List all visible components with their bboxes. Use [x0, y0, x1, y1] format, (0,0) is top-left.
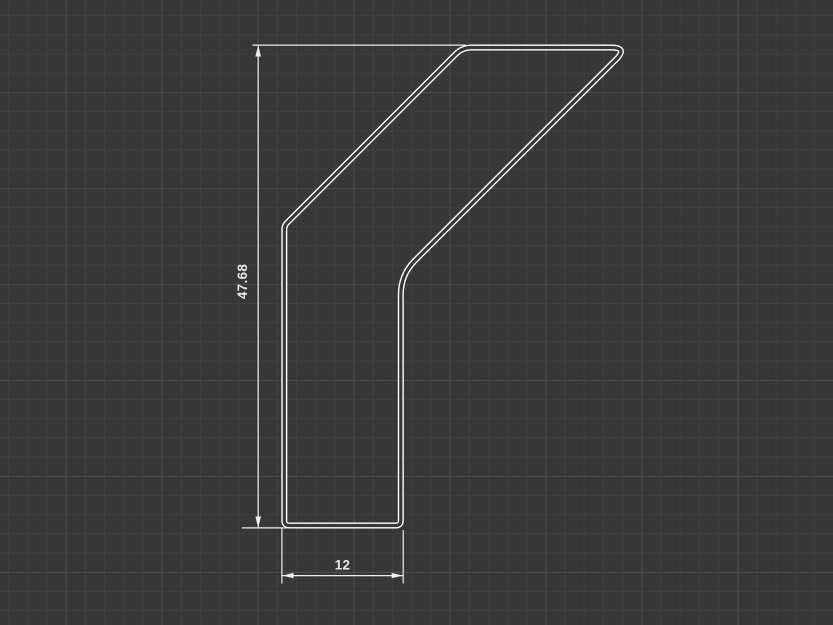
sketch-layer: 47.68 12 — [0, 0, 833, 625]
dimension-height[interactable]: 47.68 — [235, 45, 466, 528]
dimension-arrow-down-icon — [255, 517, 261, 528]
dimension-arrow-up-icon — [255, 45, 261, 56]
dimension-arrow-left-icon — [282, 573, 293, 578]
profile-outline[interactable] — [284, 48, 621, 526]
sketch-canvas[interactable]: 47.68 12 — [0, 0, 833, 625]
profile-outline-gap-stroke — [284, 48, 621, 526]
dimension-arrow-right-icon — [392, 573, 403, 578]
dimension-width[interactable]: 12 — [282, 529, 403, 584]
dimension-width-label[interactable]: 12 — [335, 558, 351, 573]
dimension-height-label[interactable]: 47.68 — [235, 264, 250, 299]
profile-outline-outer-stroke — [284, 48, 621, 526]
